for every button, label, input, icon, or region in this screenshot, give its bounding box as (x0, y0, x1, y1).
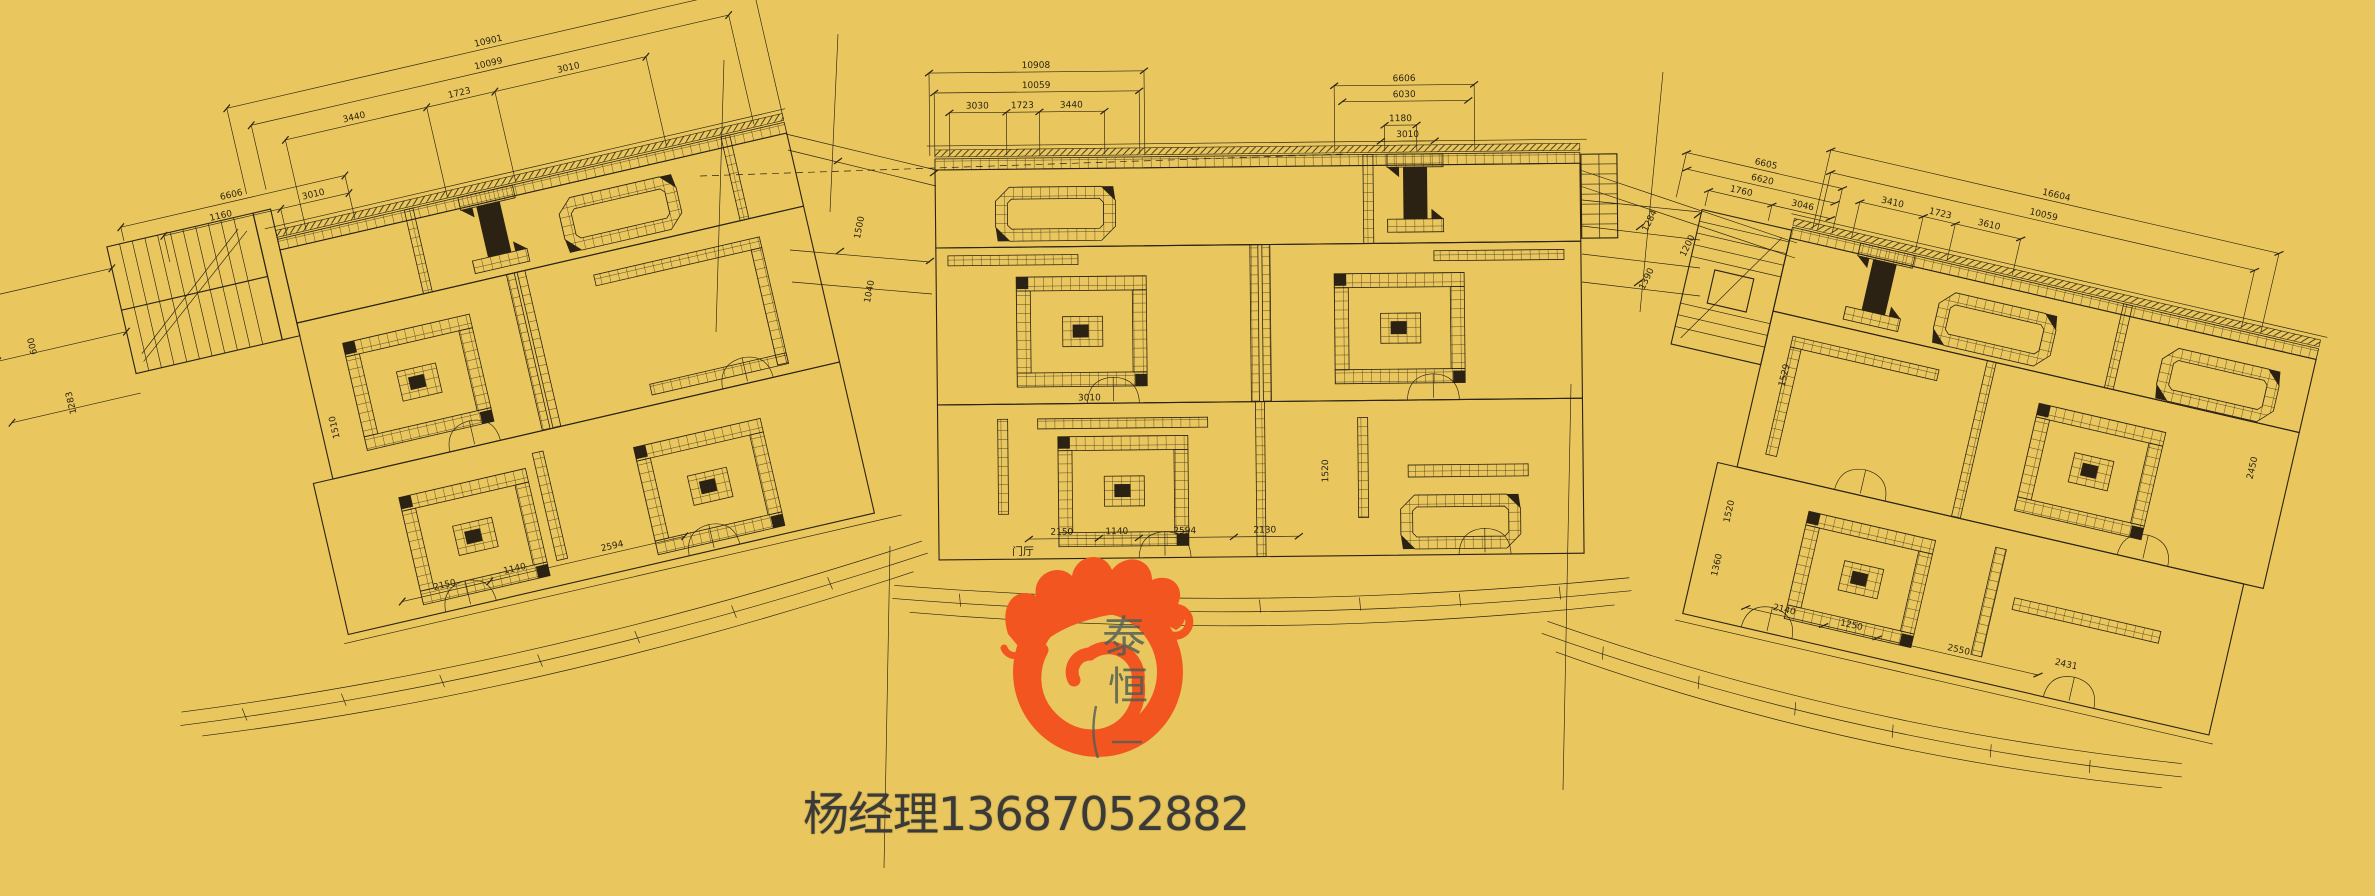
dim-label: 3610 (1977, 218, 2002, 233)
dim-label: 600 (26, 336, 40, 355)
dim-label: 3440 (342, 110, 367, 125)
dim-label: 3030 (966, 101, 989, 111)
logo-character-2: 恒 (1108, 664, 1148, 710)
dim-label: 1723 (1928, 207, 1953, 222)
dim-label: 1500 (853, 215, 867, 240)
dim-label: 3410 (1880, 196, 1905, 211)
dim-label: 1390 (1638, 266, 1657, 291)
dim-label: 10099 (473, 56, 503, 72)
dim-label: 1200 (1679, 233, 1698, 258)
dim-label: 2550 (1946, 643, 1971, 658)
staircase (107, 213, 282, 373)
dim-label: 2130 (1253, 525, 1276, 535)
staircase (1671, 210, 1792, 365)
dim-label: 1723 (1011, 101, 1034, 111)
dim-label: 1283 (65, 390, 80, 415)
dim-label: 1760 (1729, 184, 1754, 199)
dim-label: 1040 (863, 279, 877, 304)
logo-character-1: 泰 (1102, 612, 1146, 663)
dim-label: 2150 (1050, 528, 1073, 538)
contact-watermark: 杨经理13687052882 (803, 778, 1249, 844)
plan-unit-left: 600 1283 10901 10099 3440 1723 3010 6606… (0, 0, 935, 780)
dim-label: 1520 (1321, 459, 1331, 482)
blueprint-canvas: 600 1283 10901 10099 3440 1723 3010 6606… (0, 0, 2375, 896)
dim-label: 2594 (1173, 526, 1196, 536)
dim-label: 3046 (1790, 199, 1815, 214)
brand-logo: 泰 恒 (1004, 557, 1189, 758)
dim-label: 1723 (447, 86, 472, 101)
room-label: 门厅 (1012, 544, 1034, 558)
dim-label: 10908 (1022, 61, 1051, 71)
dim-label: 1180 (1389, 114, 1412, 124)
dim-label: 6606 (219, 188, 244, 203)
side-ladder (1581, 154, 1618, 238)
dim-label: 6606 (1393, 74, 1416, 84)
roof-hatch-band (276, 114, 784, 238)
floor-plan-drawing: 600 1283 10901 10099 3440 1723 3010 6606… (0, 0, 2375, 896)
dim-label: 10059 (1022, 81, 1051, 91)
dim-label: 3010 (1396, 130, 1419, 140)
dim-label: 1284 (1641, 208, 1660, 233)
dim-label: 3010 (1078, 393, 1101, 403)
dim-label: 3440 (1060, 100, 1083, 110)
dim-label: 16604 (2041, 188, 2071, 204)
plan-unit-right: 16604 10059 3410 1723 3610 6605 6620 176… (1534, 100, 2345, 821)
plan-unit-center: 门厅 10908 10059 3030 1723 3440 6606 6030 … (887, 55, 1632, 630)
dim-label: 6030 (1393, 90, 1416, 100)
dim-label: 6605 (1754, 157, 1779, 172)
dim-label: 2431 (2054, 658, 2079, 673)
dim-label: 2594 (600, 539, 625, 554)
dim-label: 1140 (1105, 527, 1128, 537)
dim-label: 10059 (2028, 207, 2058, 223)
dim-label: 3010 (301, 188, 326, 203)
dim-label: 1360 (1710, 553, 1725, 578)
dim-label: 6620 (1750, 173, 1775, 188)
dim-label: 1520 (1722, 499, 1737, 524)
dim-label: 2450 (2246, 456, 2261, 481)
dim-label: 1510 (328, 415, 343, 440)
dim-label: 10901 (473, 34, 503, 50)
dim-label: 3010 (556, 61, 581, 76)
